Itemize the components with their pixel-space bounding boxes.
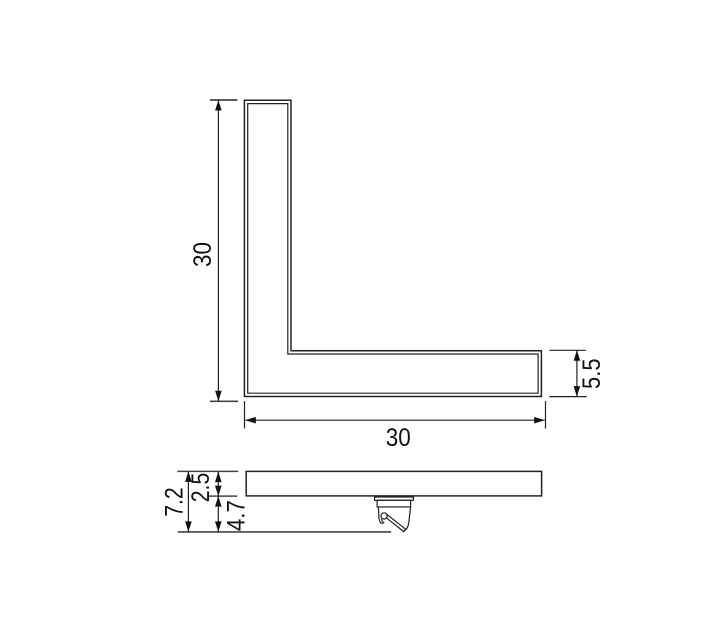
svg-text:2.5: 2.5	[187, 473, 215, 503]
svg-text:7.2: 7.2	[160, 487, 188, 517]
svg-text:30: 30	[189, 242, 217, 267]
svg-text:4.7: 4.7	[223, 500, 251, 531]
svg-text:5.5: 5.5	[578, 358, 606, 389]
svg-text:30: 30	[386, 424, 411, 452]
